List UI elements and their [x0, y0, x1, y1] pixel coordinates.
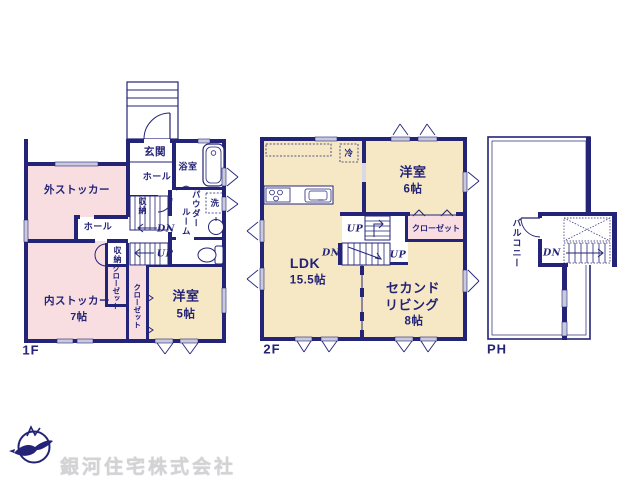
floor-label-1f: 1F [22, 344, 39, 357]
company-logo-icon [9, 427, 53, 463]
floor-2f-plan [247, 124, 479, 352]
room-label-balcony: バルコニー [512, 218, 521, 268]
room-label-powder-1: パウダー [192, 190, 201, 228]
label-closet-2f: クローゼット [412, 225, 460, 233]
label-storage-upper: 収納 [138, 197, 146, 215]
floorplan-image: 玄関 ホール 浴室 パウダー ルーム 洗 収納 収納 クローゼット クローゼット… [0, 0, 640, 480]
room-label-second-living-1: セカンド [386, 282, 440, 295]
stairs-dn-label-1f: DN [157, 224, 175, 234]
kitchen-counter-icon [264, 186, 333, 204]
room-label-genkan: 玄関 [144, 147, 166, 158]
label-laundry: 洗 [210, 199, 219, 208]
stairs-ph-icon [564, 243, 610, 263]
label-closet-b: クローゼット [133, 284, 141, 329]
room-label-yoshitsu-6: 洋室 [399, 166, 426, 179]
room-label-ldk: LDK [290, 256, 320, 270]
floor-1f-plan [24, 82, 238, 354]
room-label-bath: 浴室 [178, 163, 197, 172]
stairs-dn-label-ph: DN [543, 248, 561, 258]
stairs-up-label-1f: UP [157, 249, 173, 259]
floor-ph-plan [488, 137, 617, 340]
label-closet-a: クローゼット [112, 265, 120, 310]
stairs-up1-label-2f: UP [347, 224, 363, 234]
company-name: 銀河住宅株式会社 [60, 452, 236, 479]
toilet-icon [198, 246, 223, 264]
label-storage-lower: 収納 [113, 246, 121, 264]
room-size-yoshitsu-5: 5帖 [177, 309, 196, 321]
room-size-second-living: 8帖 [405, 316, 424, 328]
room-label-powder-2: ルーム [182, 208, 191, 237]
room-label-hall-mid: ホール [84, 223, 113, 232]
room-label-uchi-stocker: 内ストッカー [44, 296, 110, 307]
floor-label-ph: PH [487, 343, 507, 356]
stairs-up2-label-2f: UP [390, 250, 406, 260]
room-size-uchi-stocker: 7帖 [70, 312, 87, 323]
bathtub-icon [203, 144, 224, 186]
washbasin-icon [209, 217, 224, 235]
room-label-hall-upper: ホール [143, 173, 172, 182]
floor-label-2f: 2F [263, 343, 280, 356]
stairs-dn-label-2f: DN [322, 248, 340, 258]
entrance-porch-icon [127, 82, 178, 139]
room-size-yoshitsu-6: 6帖 [404, 184, 423, 196]
room-label-soto-stocker: 外ストッカー [44, 185, 110, 196]
floorplan-drawing [0, 0, 640, 480]
label-fridge: 冷 [344, 149, 353, 158]
room-label-yoshitsu-5: 洋室 [172, 290, 199, 303]
room-size-ldk: 15.5帖 [290, 275, 326, 287]
room-label-second-living-2: リビング [385, 299, 439, 312]
